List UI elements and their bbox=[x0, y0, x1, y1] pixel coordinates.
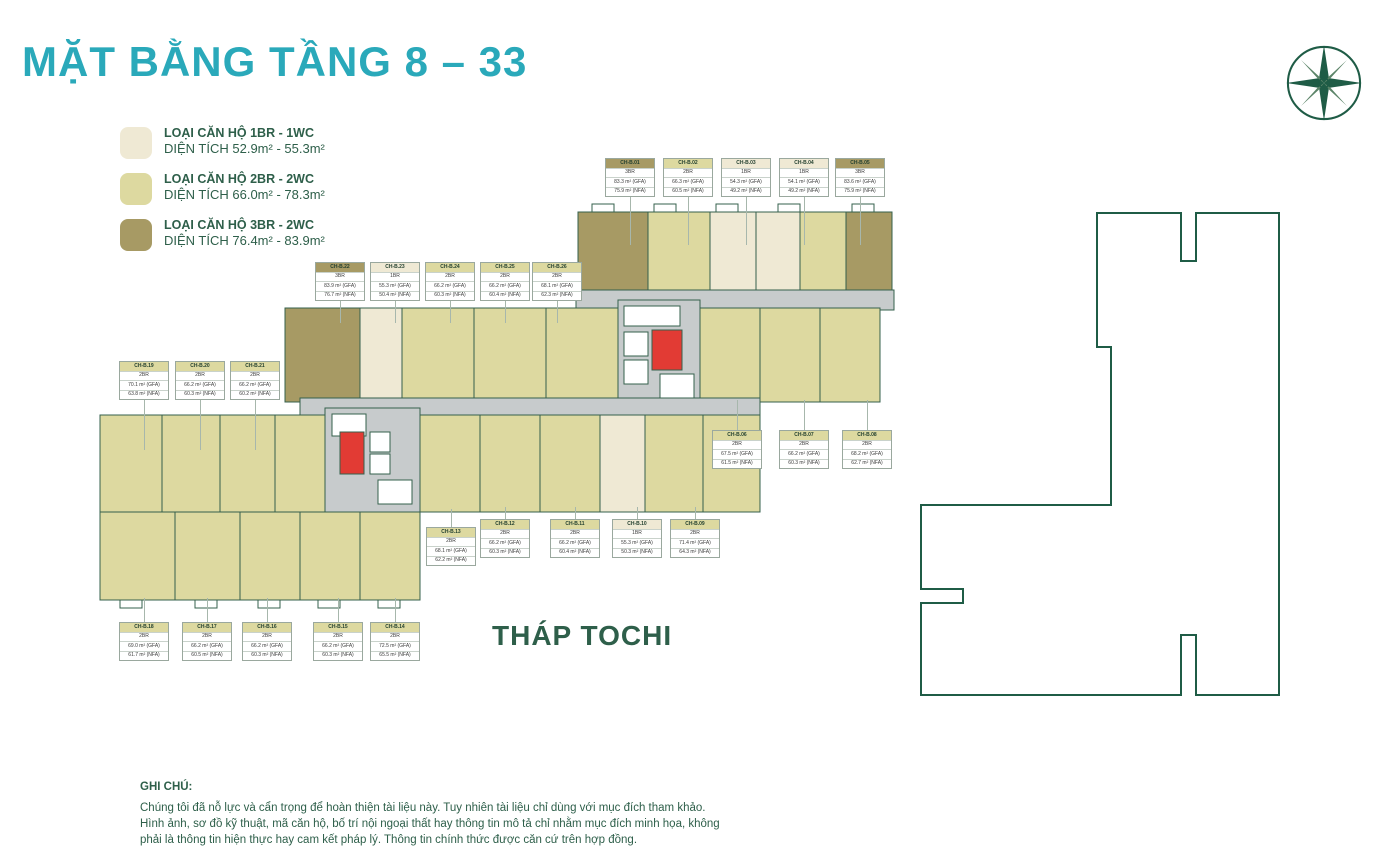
unit-gfa: 66.2 m² (GFA) bbox=[176, 380, 224, 390]
unit-tag: CH-B.24 2BR 66.2 m² (GFA) 60.3 m² (NFA) bbox=[425, 262, 475, 301]
unit-id: CH-B.25 bbox=[481, 263, 529, 272]
unit-leader-line bbox=[688, 197, 689, 245]
unit-nfa: 62.2 m² (NFA) bbox=[427, 556, 475, 566]
unit-nfa: 60.4 m² (NFA) bbox=[481, 291, 529, 301]
unit-type: 2BR bbox=[780, 440, 828, 450]
unit-nfa: 63.8 m² (NFA) bbox=[120, 390, 168, 400]
adjacent-tower-outline bbox=[921, 213, 1279, 695]
unit-tag: CH-B.06 2BR 67.5 m² (GFA) 61.5 m² (NFA) bbox=[712, 430, 762, 469]
unit-nfa: 75.9 m² (NFA) bbox=[606, 187, 654, 197]
unit-gfa: 67.5 m² (GFA) bbox=[713, 449, 761, 459]
unit-type: 2BR bbox=[427, 537, 475, 547]
unit-gfa: 66.2 m² (GFA) bbox=[231, 380, 279, 390]
unit-nfa: 49.2 m² (NFA) bbox=[722, 187, 770, 197]
unit-leader-line bbox=[860, 197, 861, 245]
unit-nfa: 60.3 m² (NFA) bbox=[780, 459, 828, 469]
unit-tag: CH-B.07 2BR 66.2 m² (GFA) 60.3 m² (NFA) bbox=[779, 430, 829, 469]
unit-leader-line bbox=[746, 197, 747, 245]
bottom-wing-lower bbox=[100, 512, 420, 608]
unit-gfa: 66.2 m² (GFA) bbox=[551, 538, 599, 548]
unit-nfa: 65.5 m² (NFA) bbox=[371, 651, 419, 661]
unit-id: CH-B.04 bbox=[780, 159, 828, 168]
unit-nfa: 50.4 m² (NFA) bbox=[371, 291, 419, 301]
unit-tag: CH-B.19 2BR 70.1 m² (GFA) 63.8 m² (NFA) bbox=[119, 361, 169, 400]
unit-nfa: 60.3 m² (NFA) bbox=[176, 390, 224, 400]
unit-type: 2BR bbox=[183, 632, 231, 642]
unit-tag: CH-B.17 2BR 66.2 m² (GFA) 60.5 m² (NFA) bbox=[182, 622, 232, 661]
unit-tag: CH-B.13 2BR 68.1 m² (GFA) 62.2 m² (NFA) bbox=[426, 527, 476, 566]
unit-tag: CH-B.25 2BR 66.2 m² (GFA) 60.4 m² (NFA) bbox=[480, 262, 530, 301]
unit-type: 2BR bbox=[120, 632, 168, 642]
unit-type: 2BR bbox=[664, 168, 712, 178]
unit-leader-line bbox=[505, 507, 506, 519]
unit-gfa: 66.2 m² (GFA) bbox=[243, 641, 291, 651]
unit-type: 3BR bbox=[836, 168, 884, 178]
unit-type: 2BR bbox=[176, 371, 224, 381]
unit-type: 2BR bbox=[713, 440, 761, 450]
unit-tag: CH-B.22 3BR 83.9 m² (GFA) 76.7 m² (NFA) bbox=[315, 262, 365, 301]
unit-leader-line bbox=[505, 301, 506, 323]
middle-wing bbox=[285, 308, 880, 402]
unit-type: 2BR bbox=[671, 529, 719, 539]
unit-nfa: 60.3 m² (NFA) bbox=[426, 291, 474, 301]
unit-tag: CH-B.16 2BR 66.2 m² (GFA) 60.3 m² (NFA) bbox=[242, 622, 292, 661]
unit-gfa: 55.3 m² (GFA) bbox=[613, 538, 661, 548]
bottom-wing-upper bbox=[100, 415, 760, 512]
unit-leader-line bbox=[451, 509, 452, 527]
unit-type: 2BR bbox=[426, 272, 474, 282]
unit-leader-line bbox=[575, 507, 576, 519]
unit-leader-line bbox=[804, 400, 805, 430]
unit-tag: CH-B.26 2BR 68.1 m² (GFA) 62.3 m² (NFA) bbox=[532, 262, 582, 301]
unit-type: 3BR bbox=[606, 168, 654, 178]
unit-tag: CH-B.05 3BR 83.6 m² (GFA) 75.9 m² (NFA) bbox=[835, 158, 885, 197]
unit-id: CH-B.18 bbox=[120, 623, 168, 632]
unit-gfa: 54.3 m² (GFA) bbox=[722, 177, 770, 187]
unit-nfa: 60.3 m² (NFA) bbox=[481, 548, 529, 558]
unit-type: 2BR bbox=[231, 371, 279, 381]
unit-leader-line bbox=[867, 400, 868, 430]
unit-id: CH-B.14 bbox=[371, 623, 419, 632]
unit-type: 2BR bbox=[481, 272, 529, 282]
unit-tag: CH-B.04 1BR 54.1 m² (GFA) 49.2 m² (NFA) bbox=[779, 158, 829, 197]
elevator-highlight-2 bbox=[340, 432, 364, 474]
unit-type: 3BR bbox=[316, 272, 364, 282]
unit-type: 2BR bbox=[314, 632, 362, 642]
unit-nfa: 61.7 m² (NFA) bbox=[120, 651, 168, 661]
unit-id: CH-B.17 bbox=[183, 623, 231, 632]
unit-tag: CH-B.20 2BR 66.2 m² (GFA) 60.3 m² (NFA) bbox=[175, 361, 225, 400]
unit-id: CH-B.07 bbox=[780, 431, 828, 440]
unit-gfa: 71.4 m² (GFA) bbox=[671, 538, 719, 548]
unit-type: 2BR bbox=[533, 272, 581, 282]
unit-type: 2BR bbox=[843, 440, 891, 450]
unit-tag: CH-B.02 2BR 66.3 m² (GFA) 60.5 m² (NFA) bbox=[663, 158, 713, 197]
unit-tag: CH-B.21 2BR 66.2 m² (GFA) 60.2 m² (NFA) bbox=[230, 361, 280, 400]
unit-leader-line bbox=[630, 197, 631, 245]
unit-leader-line bbox=[737, 400, 738, 430]
unit-tag: CH-B.12 2BR 66.2 m² (GFA) 60.3 m² (NFA) bbox=[480, 519, 530, 558]
unit-type: 2BR bbox=[243, 632, 291, 642]
unit-id: CH-B.23 bbox=[371, 263, 419, 272]
unit-tag: CH-B.08 2BR 68.2 m² (GFA) 62.7 m² (NFA) bbox=[842, 430, 892, 469]
unit-leader-line bbox=[144, 400, 145, 450]
unit-type: 1BR bbox=[722, 168, 770, 178]
unit-leader-line bbox=[255, 400, 256, 450]
tower-name-label: THÁP TOCHI bbox=[492, 620, 672, 652]
unit-nfa: 62.7 m² (NFA) bbox=[843, 459, 891, 469]
unit-nfa: 64.3 m² (NFA) bbox=[671, 548, 719, 558]
unit-id: CH-B.24 bbox=[426, 263, 474, 272]
unit-nfa: 60.2 m² (NFA) bbox=[231, 390, 279, 400]
brochure-page: MẶT BẰNG TẦNG 8 – 33 LOẠI CĂN HỘ 1BR - 1… bbox=[0, 0, 1400, 866]
unit-gfa: 66.2 m² (GFA) bbox=[780, 449, 828, 459]
unit-leader-line bbox=[804, 197, 805, 245]
unit-leader-line bbox=[450, 301, 451, 323]
elevator-highlight-1 bbox=[652, 330, 682, 370]
unit-type: 1BR bbox=[780, 168, 828, 178]
unit-type: 1BR bbox=[371, 272, 419, 282]
unit-type: 2BR bbox=[481, 529, 529, 539]
unit-tag: CH-B.23 1BR 55.3 m² (GFA) 50.4 m² (NFA) bbox=[370, 262, 420, 301]
unit-tag: CH-B.10 1BR 55.3 m² (GFA) 50.3 m² (NFA) bbox=[612, 519, 662, 558]
unit-nfa: 60.5 m² (NFA) bbox=[183, 651, 231, 661]
unit-id: CH-B.05 bbox=[836, 159, 884, 168]
unit-type: 2BR bbox=[371, 632, 419, 642]
unit-id: CH-B.19 bbox=[120, 362, 168, 371]
unit-gfa: 68.1 m² (GFA) bbox=[427, 546, 475, 556]
unit-gfa: 66.2 m² (GFA) bbox=[481, 281, 529, 291]
unit-id: CH-B.15 bbox=[314, 623, 362, 632]
core-2 bbox=[325, 408, 420, 512]
unit-id: CH-B.12 bbox=[481, 520, 529, 529]
unit-gfa: 66.2 m² (GFA) bbox=[183, 641, 231, 651]
unit-tag: CH-B.09 2BR 71.4 m² (GFA) 64.3 m² (NFA) bbox=[670, 519, 720, 558]
unit-leader-line bbox=[557, 301, 558, 323]
unit-gfa: 70.1 m² (GFA) bbox=[120, 380, 168, 390]
unit-id: CH-B.21 bbox=[231, 362, 279, 371]
floor-plan bbox=[0, 0, 1400, 866]
unit-nfa: 61.5 m² (NFA) bbox=[713, 459, 761, 469]
unit-leader-line bbox=[395, 301, 396, 323]
unit-tag: CH-B.15 2BR 66.2 m² (GFA) 60.3 m² (NFA) bbox=[313, 622, 363, 661]
notes-body: Chúng tôi đã nỗ lực và cẩn trọng để hoàn… bbox=[140, 800, 720, 848]
unit-id: CH-B.08 bbox=[843, 431, 891, 440]
unit-gfa: 66.2 m² (GFA) bbox=[314, 641, 362, 651]
unit-tag: CH-B.14 2BR 72.5 m² (GFA) 65.5 m² (NFA) bbox=[370, 622, 420, 661]
unit-nfa: 50.3 m² (NFA) bbox=[613, 548, 661, 558]
unit-id: CH-B.10 bbox=[613, 520, 661, 529]
unit-type: 2BR bbox=[120, 371, 168, 381]
core-1 bbox=[618, 300, 700, 406]
unit-tag: CH-B.11 2BR 66.2 m² (GFA) 60.4 m² (NFA) bbox=[550, 519, 600, 558]
notes: GHI CHÚ: Chúng tôi đã nỗ lực và cẩn trọn… bbox=[140, 781, 720, 848]
unit-id: CH-B.13 bbox=[427, 528, 475, 537]
unit-leader-line bbox=[200, 400, 201, 450]
unit-gfa: 72.5 m² (GFA) bbox=[371, 641, 419, 651]
unit-id: CH-B.16 bbox=[243, 623, 291, 632]
unit-id: CH-B.22 bbox=[316, 263, 364, 272]
notes-heading: GHI CHÚ: bbox=[140, 781, 720, 793]
unit-gfa: 83.6 m² (GFA) bbox=[836, 177, 884, 187]
unit-gfa: 66.2 m² (GFA) bbox=[426, 281, 474, 291]
unit-id: CH-B.03 bbox=[722, 159, 770, 168]
unit-id: CH-B.09 bbox=[671, 520, 719, 529]
unit-leader-line bbox=[267, 598, 268, 622]
unit-nfa: 76.7 m² (NFA) bbox=[316, 291, 364, 301]
unit-gfa: 68.2 m² (GFA) bbox=[843, 449, 891, 459]
top-wing bbox=[578, 204, 892, 298]
unit-leader-line bbox=[338, 598, 339, 622]
unit-type: 2BR bbox=[551, 529, 599, 539]
unit-leader-line bbox=[695, 507, 696, 519]
unit-gfa: 69.0 m² (GFA) bbox=[120, 641, 168, 651]
unit-gfa: 68.1 m² (GFA) bbox=[533, 281, 581, 291]
unit-id: CH-B.06 bbox=[713, 431, 761, 440]
unit-gfa: 83.9 m² (GFA) bbox=[316, 281, 364, 291]
unit-gfa: 66.3 m² (GFA) bbox=[664, 177, 712, 187]
unit-id: CH-B.02 bbox=[664, 159, 712, 168]
unit-nfa: 75.9 m² (NFA) bbox=[836, 187, 884, 197]
unit-nfa: 62.3 m² (NFA) bbox=[533, 291, 581, 301]
unit-nfa: 49.2 m² (NFA) bbox=[780, 187, 828, 197]
unit-nfa: 60.4 m² (NFA) bbox=[551, 548, 599, 558]
unit-leader-line bbox=[207, 598, 208, 622]
unit-leader-line bbox=[395, 598, 396, 622]
unit-nfa: 60.5 m² (NFA) bbox=[664, 187, 712, 197]
unit-gfa: 66.2 m² (GFA) bbox=[481, 538, 529, 548]
unit-id: CH-B.11 bbox=[551, 520, 599, 529]
unit-id: CH-B.20 bbox=[176, 362, 224, 371]
unit-gfa: 83.3 m² (GFA) bbox=[606, 177, 654, 187]
unit-gfa: 54.1 m² (GFA) bbox=[780, 177, 828, 187]
unit-id: CH-B.01 bbox=[606, 159, 654, 168]
unit-tag: CH-B.03 1BR 54.3 m² (GFA) 49.2 m² (NFA) bbox=[721, 158, 771, 197]
unit-leader-line bbox=[637, 507, 638, 519]
unit-id: CH-B.26 bbox=[533, 263, 581, 272]
unit-nfa: 60.3 m² (NFA) bbox=[243, 651, 291, 661]
unit-nfa: 60.3 m² (NFA) bbox=[314, 651, 362, 661]
unit-gfa: 55.3 m² (GFA) bbox=[371, 281, 419, 291]
unit-leader-line bbox=[340, 301, 341, 323]
unit-tag: CH-B.01 3BR 83.3 m² (GFA) 75.9 m² (NFA) bbox=[605, 158, 655, 197]
unit-tag: CH-B.18 2BR 69.0 m² (GFA) 61.7 m² (NFA) bbox=[119, 622, 169, 661]
unit-leader-line bbox=[144, 598, 145, 622]
unit-type: 1BR bbox=[613, 529, 661, 539]
